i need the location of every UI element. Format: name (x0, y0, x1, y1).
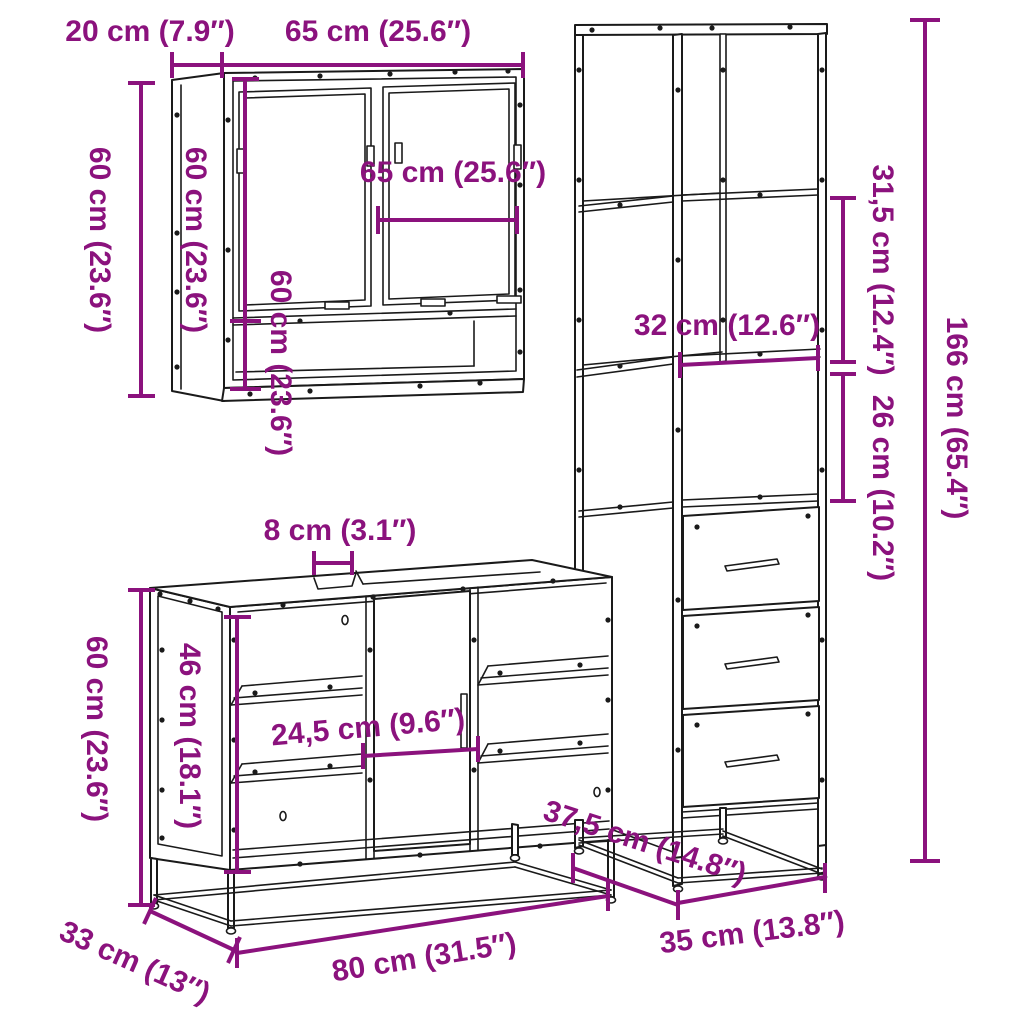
dim-vanity-inner-height-label: 46 cm (18.1″) (173, 643, 206, 829)
drawer-2 (683, 607, 819, 709)
dim-tall-middle-height-label: 26 cm (10.2″) (866, 395, 899, 581)
dim-mirror-width-inner-label: 65 cm (25.6″) (360, 156, 546, 189)
mirror-door-left (239, 88, 371, 311)
dim-vanity-gap-label: 8 cm (3.1″) (264, 514, 417, 547)
mirror-cabinet-drawing (172, 68, 524, 401)
vanity-cabinet-drawing (150, 560, 616, 934)
dim-mirror-width-top-label: 65 cm (25.6″) (285, 15, 471, 48)
dim-tall-total-height-label: 166 cm (65.4″) (940, 317, 973, 520)
furniture-dimension-diagram: 20 cm (7.9″) 65 cm (25.6″) 60 cm (23.6″)… (0, 0, 1024, 1024)
dim-mirror-height-outer-label: 60 cm (23.6″) (83, 147, 116, 333)
dim-tall-upper-height-label: 31,5 cm (12.4″) (866, 164, 899, 375)
door-handle-icon (237, 149, 244, 173)
drawer-3 (683, 706, 819, 807)
dim-mirror-height-side-label: 60 cm (23.6″) (179, 147, 212, 333)
mirror-door-right (383, 83, 515, 305)
drawer-1 (683, 507, 819, 610)
dim-mirror-depth-label: 20 cm (7.9″) (65, 15, 234, 48)
diagram-canvas: 20 cm (7.9″) 65 cm (25.6″) 60 cm (23.6″)… (0, 0, 1024, 1024)
dim-mirror-height-inner-label: 60 cm (23.6″) (264, 270, 297, 456)
dim-tall-width-label: 35 cm (13.8″) (658, 905, 847, 960)
dim-vanity-height-label: 60 cm (23.6″) (80, 636, 113, 822)
dim-tall-shelf-width-label: 32 cm (12.6″) (634, 309, 820, 342)
